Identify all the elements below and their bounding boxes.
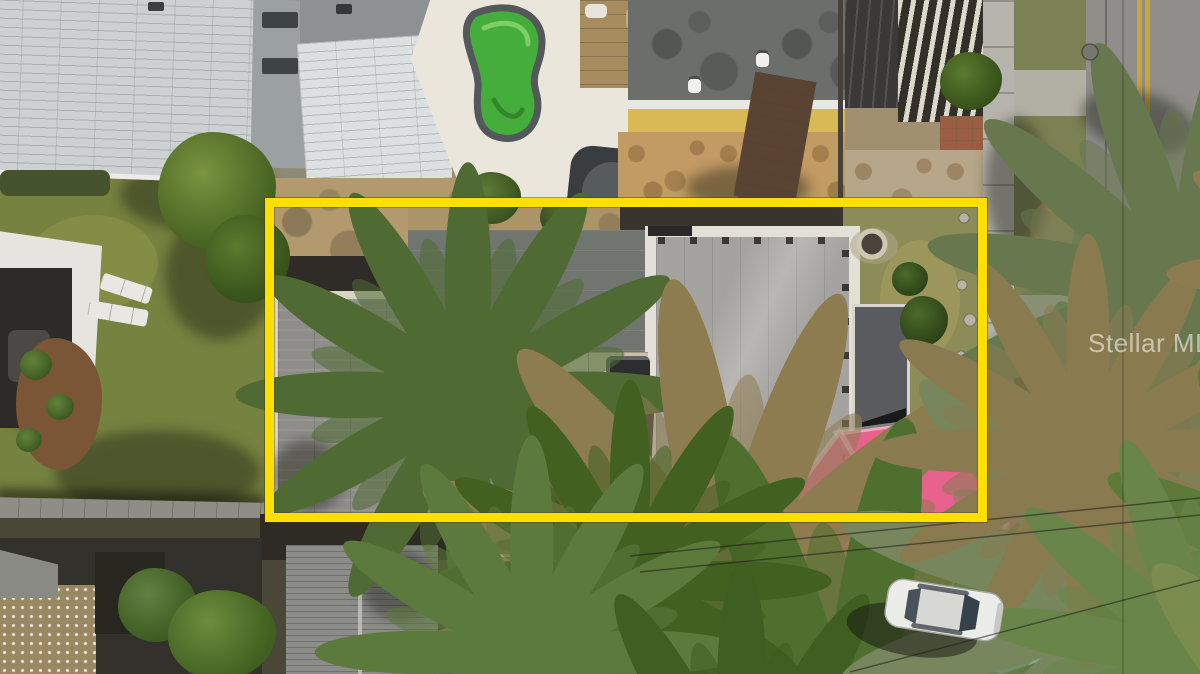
manhole-cover — [1082, 44, 1098, 60]
aerial-photo: Stellar MLS — [0, 0, 1200, 674]
property-boundary-highlight — [265, 198, 987, 522]
pool-water — [466, 8, 542, 139]
watermark: Stellar MLS — [1088, 328, 1200, 359]
pool — [466, 8, 542, 139]
